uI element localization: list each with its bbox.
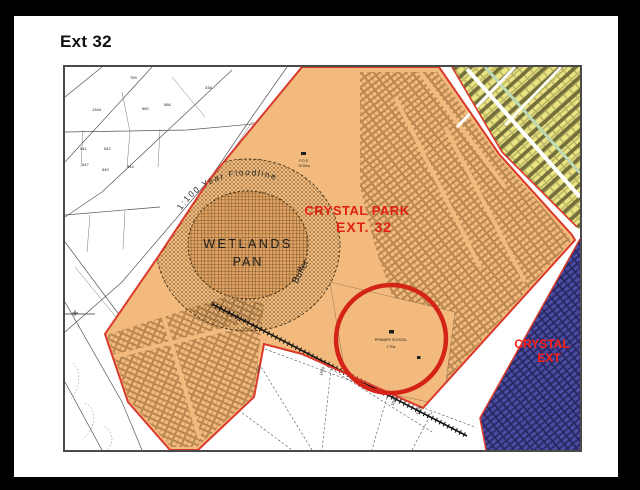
- presentation-slide: Ext 32: [14, 16, 618, 477]
- map-canvas: 7693381344560586541542547540544162516501…: [65, 67, 580, 450]
- pos-label: P.O.S.: [299, 159, 309, 163]
- crystal-ext-label-2: EXT: [537, 351, 561, 365]
- plot-number: 541: [80, 146, 87, 151]
- plot-number: 338: [205, 85, 212, 90]
- school-area-label: 2.7Ha: [387, 345, 396, 349]
- school-symbol: [389, 330, 394, 334]
- wetlands-label-2: PAN: [233, 255, 264, 269]
- plot-number: 1344: [92, 107, 102, 112]
- wetlands-label-1: WETLANDS: [203, 237, 292, 251]
- map-frame: 7693381344560586541542547540544162516501…: [63, 65, 582, 452]
- school-label: PRIMARY SCHOOL: [375, 338, 407, 342]
- slide-title: Ext 32: [60, 32, 112, 52]
- plot-number: 542: [104, 146, 111, 151]
- crystal-park-label: CRYSTAL PARK: [304, 203, 409, 218]
- plot-number: 769: [130, 75, 137, 80]
- plot-number: 544: [127, 164, 134, 169]
- plot-number: 540: [102, 167, 109, 172]
- ext32-label: EXT. 32: [336, 219, 392, 235]
- plot-number: 586: [164, 102, 171, 107]
- plot-number: 547: [82, 162, 89, 167]
- school-marker-2: [417, 356, 421, 359]
- pos-area-label: 10.90ha: [298, 164, 310, 168]
- page-background: { "title": "Ext 32", "map": { "labels": …: [0, 0, 640, 490]
- plot-number: 560: [142, 106, 149, 111]
- crystal-ext-label-1: CRYSTAL: [514, 337, 569, 351]
- pos-symbol: [301, 152, 306, 155]
